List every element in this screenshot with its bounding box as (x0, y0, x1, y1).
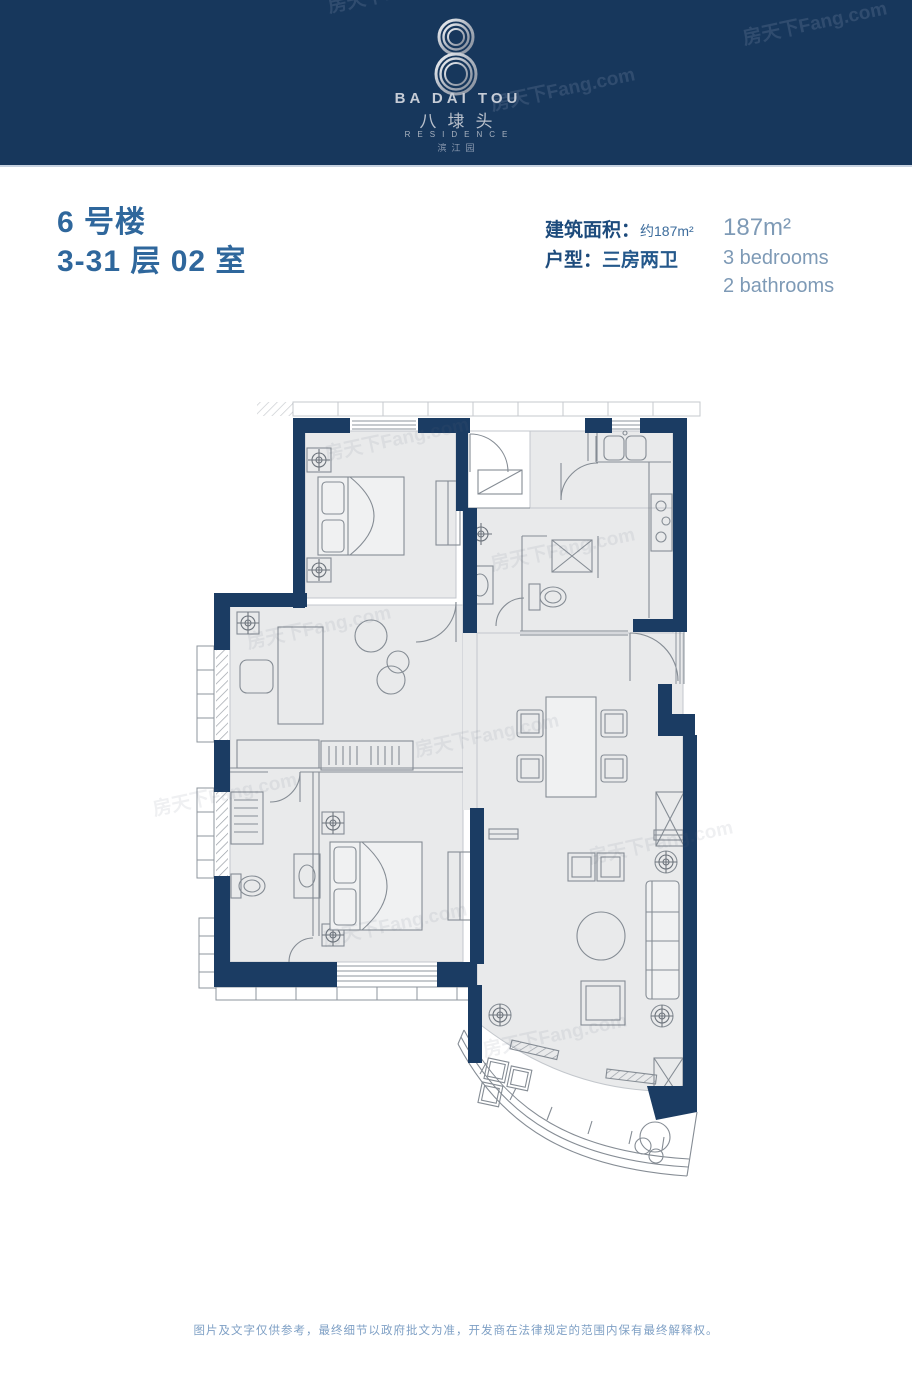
unit-specs-cn: 建筑面积：约187m² 户型：三房两卫 (545, 216, 694, 276)
building-number: 6 号楼 (57, 203, 246, 242)
footer-disclaimer: 图片及文字仅供参考，最终细节以政府批文为准，开发商在法律规定的范围内保有最终解释… (0, 1322, 912, 1338)
area-value: 约187m² (640, 223, 694, 239)
brand-name-cn: 八埭头 (0, 107, 912, 132)
bedrooms-en: 3 bedrooms (723, 244, 834, 272)
type-label: 户型： (545, 250, 602, 271)
area-label: 建筑面积： (545, 220, 640, 241)
area-en: 187m² (723, 212, 834, 244)
unit-specs-en: 187m² 3 bedrooms 2 bathrooms (723, 212, 834, 300)
floor-plan (190, 395, 710, 1200)
floor-room: 3-31 层 02 室 (57, 242, 246, 281)
type-value: 三房两卫 (602, 250, 678, 271)
type-row: 户型：三房两卫 (545, 246, 694, 276)
page: BA DAI TOU 八埭头 RESIDENCE 滨江园 6 号楼 3-31 层… (0, 0, 912, 1400)
brand-subname: 滨江园 (0, 141, 912, 154)
unit-title: 6 号楼 3-31 层 02 室 (57, 203, 246, 281)
bathrooms-en: 2 bathrooms (723, 272, 834, 300)
brand-name-en: BA DAI TOU (0, 90, 912, 107)
brand-header: BA DAI TOU 八埭头 RESIDENCE 滨江园 (0, 0, 912, 167)
corridor-tiles (257, 402, 700, 416)
brand-residence-label: RESIDENCE (0, 130, 912, 139)
area-row: 建筑面积：约187m² (545, 216, 694, 246)
